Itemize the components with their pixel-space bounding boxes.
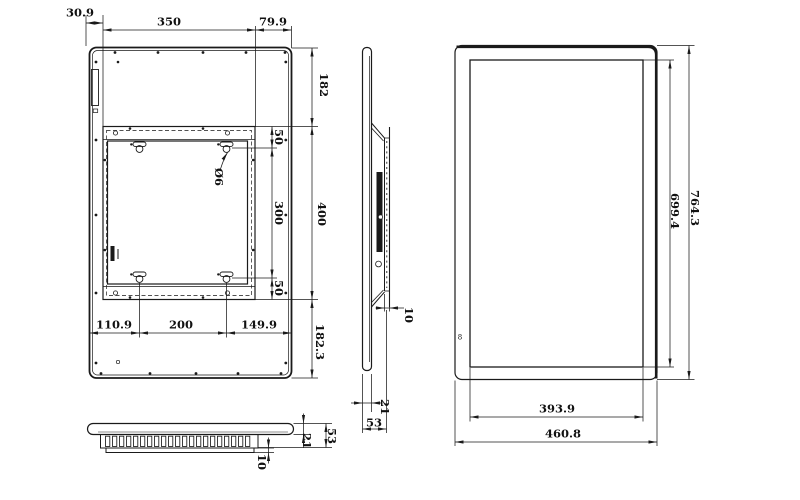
- dim-back-plate-height: 400: [315, 202, 327, 226]
- dim-back-hole-margin-bottom: 50: [272, 280, 284, 296]
- small-hole: [116, 360, 119, 363]
- bezel-edge: [457, 47, 657, 379]
- front-view-dimensions: [455, 46, 695, 447]
- technical-drawing-canvas: 30.9 350 79.9 182 400 182.3 50 300 50 Ø6…: [0, 0, 800, 500]
- dim-side-front-thickness: 21: [378, 399, 390, 415]
- dim-bottom-total-depth: 53: [325, 428, 337, 444]
- dim-back-hole-pitch-vertical: 300: [272, 201, 284, 225]
- dim-bottom-rear-plate-offset: 10: [255, 454, 267, 470]
- dim-back-hole-right: 149.9: [241, 319, 277, 331]
- dim-back-bottom-margin: 182.3: [313, 324, 325, 360]
- front-bezel-marking: 8: [458, 335, 462, 342]
- keyhole-slot-bottom-right: [217, 272, 233, 282]
- bottom-view: [88, 414, 333, 464]
- dim-front-screen-width: 393.9: [539, 403, 575, 415]
- heatsink-fins: [106, 436, 250, 446]
- rear-plate: [106, 448, 254, 453]
- dim-back-hole-left: 110.9: [96, 319, 132, 331]
- keyhole-slot-top-left: [130, 142, 146, 152]
- dim-back-offset-right: 79.9: [259, 16, 287, 28]
- dim-back-hole-margin-top: 50: [272, 129, 284, 145]
- dim-bottom-front-thickness: 21: [300, 433, 312, 449]
- side-view: [351, 48, 404, 434]
- dim-back-plate-width: 350: [157, 16, 181, 28]
- dim-back-offset-left: 30.9: [66, 7, 94, 19]
- screen-area: [470, 60, 643, 367]
- hole-diameter-leader: [221, 153, 228, 170]
- keyhole-slot-bottom-left: [130, 272, 146, 282]
- keyhole-slot-top-right: [217, 142, 233, 152]
- dimensional-drawing: [0, 0, 800, 500]
- front-view: [455, 46, 695, 447]
- dim-front-screen-height: 699.4: [668, 193, 680, 229]
- dim-side-mount-standoff: 10: [402, 307, 414, 323]
- dim-back-hole-diameter: Ø6: [212, 168, 224, 186]
- dim-front-overall-height: 764.3: [688, 190, 700, 226]
- dim-back-hole-pitch-horizontal: 200: [169, 319, 193, 331]
- dim-back-top-margin: 182: [317, 73, 329, 97]
- dim-side-total-depth: 53: [366, 417, 382, 429]
- dim-front-overall-width: 460.8: [545, 428, 581, 440]
